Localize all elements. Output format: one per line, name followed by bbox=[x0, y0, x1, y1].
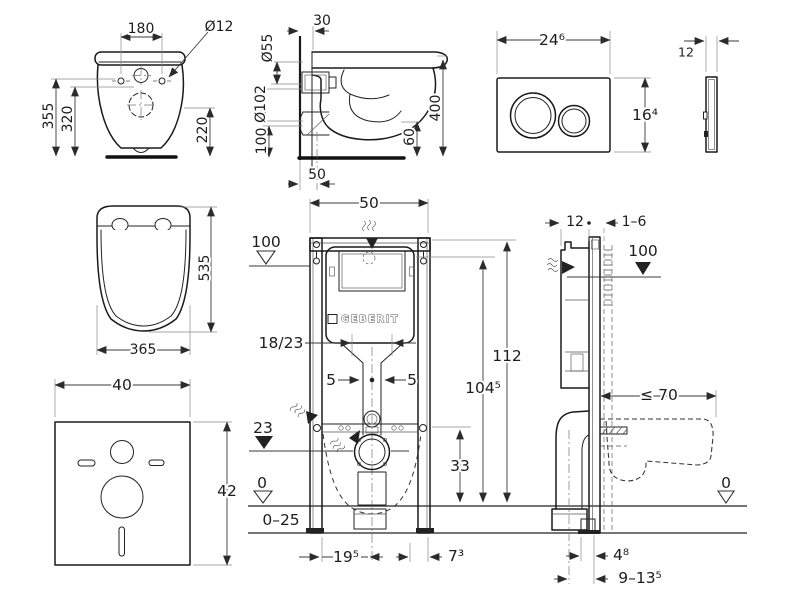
dim-wc-side-front-clearance: 60 bbox=[402, 128, 418, 146]
seat-top-view: 535 365 bbox=[97, 206, 217, 358]
dim-frame-depth: 12 bbox=[566, 214, 584, 230]
dim-height-frame: 112 bbox=[492, 347, 522, 365]
mat-outline bbox=[55, 422, 190, 565]
pan-side-dashed-outline bbox=[600, 419, 713, 481]
dim-wc-back-hole-dia: Ø12 bbox=[205, 19, 234, 35]
mat-slot-left bbox=[78, 460, 95, 466]
dim-offset-right: 5 bbox=[407, 371, 417, 389]
dim-height-plate: 104⁵ bbox=[465, 379, 501, 397]
geberit-logo-mark bbox=[328, 315, 337, 324]
mat-drain-cutout bbox=[101, 476, 143, 518]
technical-drawing-canvas: 180 Ø12 355 320 220 bbox=[0, 0, 800, 600]
mat-slot-bottom bbox=[119, 527, 125, 556]
flush-plate-side: 12 bbox=[678, 36, 739, 152]
wc-side-outline bbox=[299, 36, 447, 172]
frame-foot-left bbox=[306, 528, 324, 534]
level-marker-open-floor bbox=[254, 491, 272, 503]
dim-offset-left: 5 bbox=[326, 371, 336, 389]
level-marker-filled-drain bbox=[255, 436, 273, 449]
flush-plate-front bbox=[497, 78, 610, 152]
water-flow-icon-side bbox=[547, 259, 558, 272]
geberit-logo: GEBERIT bbox=[341, 314, 399, 325]
dim-drain-offset-side: 9–13⁵ bbox=[618, 569, 662, 587]
dim-foot-right: 7³ bbox=[448, 547, 464, 565]
frame-side-dimensions: 12 1–6 100 ≤ 70 0 4⁸ 9–13⁵ bbox=[545, 214, 734, 587]
frame-front-view: GEBERIT bbox=[249, 194, 522, 566]
level-marker-open-plate bbox=[257, 251, 275, 264]
level-marker-filled-plate-side bbox=[635, 262, 651, 275]
fixing-hole-left bbox=[118, 78, 124, 84]
sound-mat-view: 40 42 bbox=[55, 376, 237, 565]
dim-drain-height: 33 bbox=[450, 457, 470, 475]
dim-mat-width: 40 bbox=[112, 376, 132, 394]
dim-frame-width: 50 bbox=[359, 194, 379, 212]
flush-button-large bbox=[511, 93, 556, 138]
dim-foot-depth: 4⁸ bbox=[613, 546, 629, 564]
wall-finish-lines bbox=[604, 245, 612, 533]
mat-flush-cutout bbox=[111, 441, 134, 464]
cistern: GEBERIT bbox=[326, 247, 415, 435]
fixing-hole-right bbox=[159, 78, 165, 84]
dim-wc-back-height-total: 355 bbox=[41, 103, 57, 130]
frame-side-view: 12 1–6 100 ≤ 70 0 4⁸ 9–13⁵ bbox=[545, 214, 734, 587]
dim-wc-back-height-mid: 320 bbox=[60, 106, 76, 133]
dim-foot-left: 19⁵ bbox=[333, 548, 359, 566]
wc-back-dimensions: 180 Ø12 355 320 220 bbox=[41, 19, 233, 156]
dim-wc-back-width: 180 bbox=[128, 21, 155, 37]
wc-back-view: 180 Ø12 355 320 220 bbox=[41, 19, 233, 157]
level-drain-label: 23 bbox=[253, 419, 273, 437]
level-plate-label: 100 bbox=[251, 233, 281, 251]
dim-wc-side-wall-offset: 30 bbox=[313, 13, 331, 29]
dim-plate-height: 16⁴ bbox=[632, 106, 658, 124]
seat-outline bbox=[97, 206, 190, 331]
frame-rail-right bbox=[418, 238, 430, 533]
water-flow-icon-flush bbox=[289, 401, 306, 418]
wall-hatch bbox=[604, 250, 612, 305]
flush-button-small bbox=[559, 106, 590, 137]
dim-wc-side-inlet-dia: Ø55 bbox=[260, 34, 276, 63]
dim-plate-thickness: 12 bbox=[678, 45, 694, 60]
frame-side-structure bbox=[547, 237, 713, 534]
seat-hinge-left bbox=[112, 219, 128, 232]
wc-side-dimensions: 30 Ø55 Ø102 100 400 60 50 bbox=[253, 13, 447, 190]
level-plate-side-label: 100 bbox=[628, 242, 658, 260]
dim-wc-back-height-right: 220 bbox=[195, 117, 211, 144]
drain-outlet-box bbox=[354, 509, 386, 529]
dim-seat-width: 365 bbox=[130, 342, 157, 358]
drain-elbow bbox=[556, 411, 589, 509]
level-marker-open-floor-side bbox=[718, 491, 734, 503]
flush-plate-view: 24⁶ 16⁴ 12 bbox=[497, 31, 739, 152]
frame-front-dimensions: 50 100 18/23 5 5 23 0 0–25 33 104⁵ bbox=[249, 194, 522, 566]
dim-mat-height: 42 bbox=[217, 482, 237, 500]
water-flow-arrow-side bbox=[562, 261, 575, 274]
dim-pan-depth: ≤ 70 bbox=[640, 386, 678, 404]
dim-finish-thickness: 1–6 bbox=[622, 214, 647, 230]
dim-floor-buildup: 0–25 bbox=[262, 511, 299, 529]
water-flow-icon-top bbox=[363, 220, 376, 231]
dim-wc-side-depth: 400 bbox=[428, 95, 444, 122]
level-floor-label: 0 bbox=[257, 474, 267, 492]
dim-wc-side-outlet-dia: Ø102 bbox=[253, 85, 269, 123]
cistern-access-window bbox=[339, 251, 405, 291]
wc-side-view: 30 Ø55 Ø102 100 400 60 50 bbox=[253, 13, 447, 190]
mat-slot-right bbox=[149, 460, 164, 466]
frame-foot-right bbox=[416, 528, 434, 534]
dim-wc-side-drain-offset: 50 bbox=[308, 167, 326, 183]
dim-plate-width: 24⁶ bbox=[539, 31, 565, 49]
frame-rail-left bbox=[310, 238, 322, 533]
level-floor-side-label: 0 bbox=[721, 474, 731, 492]
dim-seat-depth: 535 bbox=[197, 255, 213, 282]
installation-diagram: 180 Ø12 355 320 220 bbox=[0, 0, 800, 600]
seat-hinge-right bbox=[155, 219, 171, 232]
dim-flush-bend-label: 18/23 bbox=[259, 334, 304, 352]
mat-dimensions: 40 42 bbox=[55, 376, 237, 565]
wc-back-outline bbox=[95, 52, 185, 157]
dim-wc-side-outlet-height: 100 bbox=[254, 128, 270, 155]
water-flow-arrow-flush bbox=[306, 411, 318, 424]
frame-rail-profile bbox=[589, 237, 600, 533]
